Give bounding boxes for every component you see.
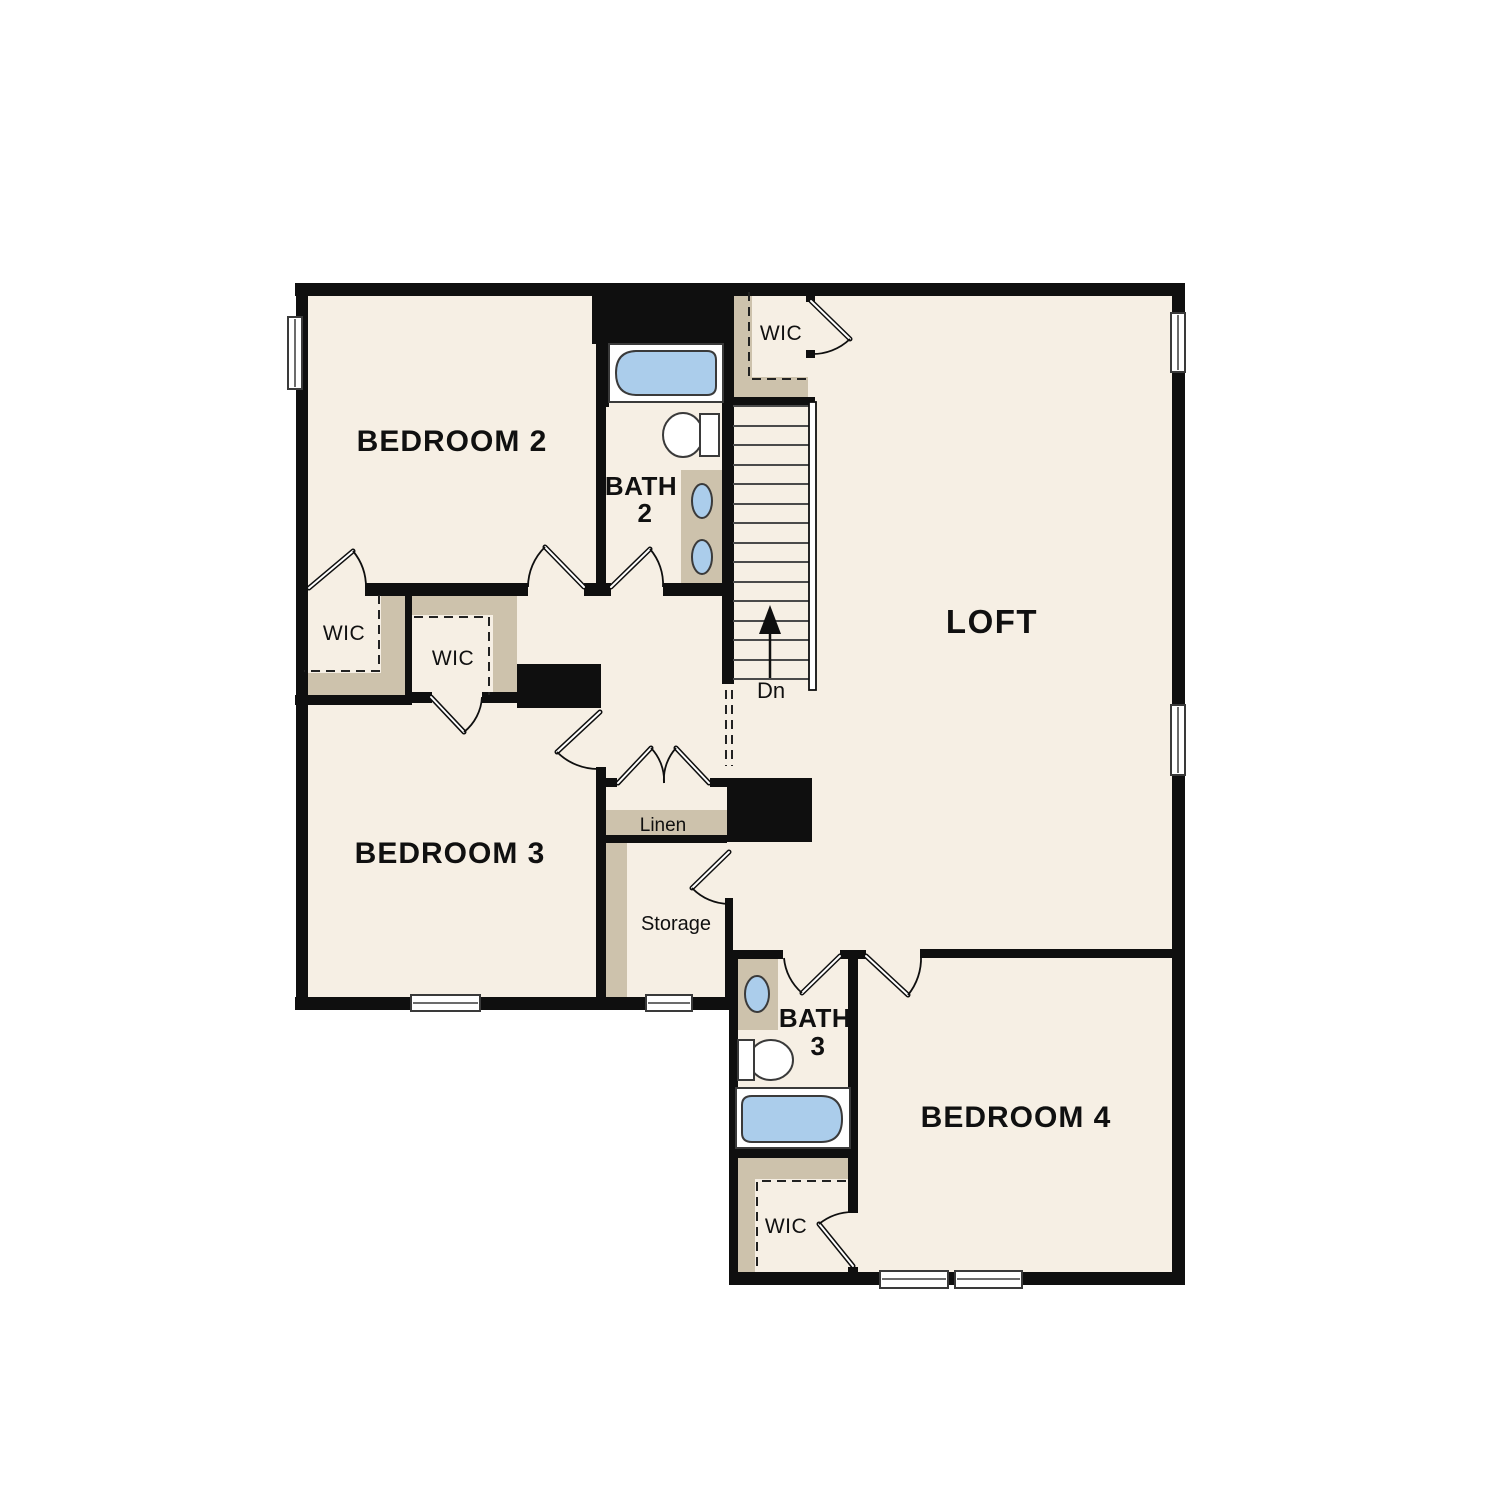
label-bedroom2: BEDROOM 2 <box>357 425 548 458</box>
wic-bedroom2-shelf-bottom <box>302 673 405 697</box>
window-loft-right-bottom <box>1171 705 1185 775</box>
wall-bedroom2-bottom-b <box>584 583 611 596</box>
label-bath2-line2: 2 <box>638 498 653 528</box>
bath3-sink <box>745 976 769 1012</box>
stair-handrail <box>809 402 816 690</box>
window-storage-bottom <box>646 995 692 1011</box>
label-loft: LOFT <box>946 603 1038 640</box>
wall-linen-stub-r <box>710 778 727 787</box>
wic-bedroom2-shelf <box>381 593 405 673</box>
label-bath2-line1: BATH <box>605 471 677 501</box>
label-bath3-line2: 3 <box>811 1031 826 1061</box>
wall-block-hall <box>517 664 601 708</box>
wall-wic-divider <box>405 583 412 705</box>
wall-stairs-top <box>722 397 815 406</box>
bath2-toilet-tank <box>700 414 719 456</box>
window-bedroom4-bottom-left <box>880 1271 948 1288</box>
wall-bedroom4-left <box>848 950 858 1213</box>
wic-bedroom3-shelf-right <box>493 590 517 697</box>
window-bedroom4-bottom-right <box>955 1271 1022 1288</box>
label-wic-bedroom2: WIC <box>323 622 365 645</box>
wall-block-above-bath2 <box>592 296 728 344</box>
floor-plan-drawing: BEDROOM 2 BATH 2 WIC LOFT WIC WIC BEDROO… <box>0 0 1500 1500</box>
bath2-sink-1 <box>692 484 712 518</box>
wall-bath2-left-strip <box>596 296 609 407</box>
wall-left <box>296 283 308 1010</box>
wic-top-shelf-bottom <box>752 377 808 400</box>
bath2-tub <box>616 351 716 395</box>
wall-block-loft <box>727 778 812 842</box>
bath3-toilet-tank <box>738 1040 754 1080</box>
wall-wic-bedroom3-stub-r <box>482 692 517 703</box>
wall-bedroom3-right <box>596 767 606 1010</box>
wall-wic-bedroom2-bottom <box>295 695 405 705</box>
wall-linen-bottom <box>601 835 727 843</box>
bath3-tub <box>742 1096 842 1142</box>
wall-loft-bedroom4 <box>920 949 1172 958</box>
bath3-toilet-bowl <box>749 1040 793 1080</box>
wall-bath3-wic-divider <box>729 1148 858 1158</box>
window-loft-right-top <box>1171 313 1185 372</box>
wall-bath2-bottom <box>663 583 731 596</box>
label-linen: Linen <box>640 815 687 836</box>
label-storage: Storage <box>641 913 711 935</box>
wall-bath3-top <box>729 950 783 959</box>
label-bedroom3: BEDROOM 3 <box>355 837 546 870</box>
wall-wic-bedroom3-top <box>412 583 517 592</box>
wic-bedroom4-shelf-left <box>736 1158 755 1273</box>
bath2-sink-2 <box>692 540 712 574</box>
window-bedroom3-bottom <box>411 995 480 1011</box>
label-bath3-line1: BATH <box>779 1003 851 1033</box>
storage-shelf <box>604 843 627 997</box>
label-stairs-dn: Dn <box>757 678 785 703</box>
label-wic-bedroom4: WIC <box>765 1215 807 1238</box>
label-wic-top: WIC <box>760 322 802 345</box>
floor-plan-page: BEDROOM 2 BATH 2 WIC LOFT WIC WIC BEDROO… <box>0 0 1500 1500</box>
wall-linen-stub-l <box>601 778 617 787</box>
bath2-toilet-bowl <box>663 413 703 457</box>
label-wic-bedroom3: WIC <box>432 647 474 670</box>
wall-storage-right <box>725 898 733 997</box>
wall-right <box>1172 283 1185 1285</box>
label-bedroom4: BEDROOM 4 <box>921 1101 1112 1134</box>
wall-top <box>295 283 1185 296</box>
window-bedroom2-left <box>288 317 302 389</box>
